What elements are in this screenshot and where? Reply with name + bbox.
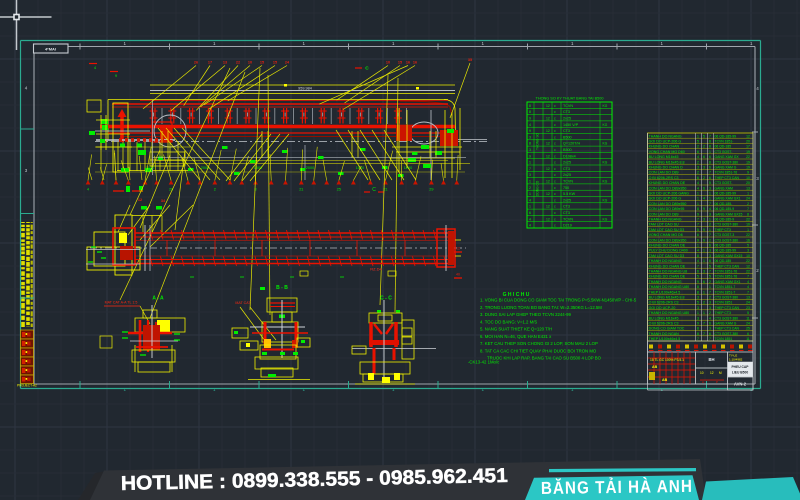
svg-text:4: 4: [697, 186, 699, 190]
svg-text:CT3: CT3: [563, 211, 570, 215]
svg-text:2: 2: [747, 202, 749, 206]
svg-text:22: 22: [746, 259, 750, 263]
svg-text:18 TL GC 100% P3.5.1: 18 TL GC 100% P3.5.1: [650, 358, 684, 362]
svg-text:c: c: [554, 154, 556, 158]
svg-text:6: 6: [709, 321, 711, 325]
svg-text:CT3 GOST-380: CT3 GOST-380: [715, 332, 739, 336]
svg-text:12: 12: [546, 217, 550, 221]
svg-text:8: 8: [697, 285, 699, 289]
svg-text:3: 3: [529, 173, 531, 177]
svg-text:1450 V/P: 1450 V/P: [563, 123, 579, 127]
svg-text:9: 9: [529, 129, 531, 133]
svg-text:KG: KG: [603, 217, 608, 221]
svg-text:1: 1: [697, 311, 699, 315]
svg-text:1: 1: [697, 191, 699, 195]
svg-text:16: 16: [406, 61, 410, 65]
svg-text:24: 24: [746, 301, 750, 305]
svg-text:Q=120T/H: Q=120T/H: [563, 142, 580, 146]
svg-text:B - B: B - B: [276, 285, 288, 291]
svg-text:8: 8: [709, 139, 711, 143]
svg-text:D219: D219: [563, 224, 572, 228]
svg-text:3: 3: [703, 165, 705, 169]
svg-text:16: 16: [413, 61, 417, 65]
svg-text:1: 1: [529, 161, 531, 165]
svg-text:06 QD-185: 06 QD-185: [715, 259, 732, 263]
svg-text:2: 2: [709, 311, 711, 315]
svg-text:2: 2: [709, 280, 711, 284]
svg-text:C: C: [365, 66, 369, 72]
svg-text:1: 1: [697, 202, 699, 206]
svg-text:6: 6: [709, 176, 711, 180]
svg-text:06 QD-185: 06 QD-185: [715, 145, 732, 149]
svg-text:GANG XAM: GANG XAM: [715, 186, 733, 190]
svg-text:8: 8: [529, 142, 531, 146]
svg-text:7: 7: [709, 202, 711, 206]
svg-text:CON LAN DO D89: CON LAN DO D89: [649, 171, 679, 175]
svg-text:20: 20: [746, 139, 750, 143]
svg-text:7: 7: [709, 269, 711, 273]
svg-text:3: 3: [703, 217, 705, 221]
svg-text:AB: AB: [662, 378, 668, 382]
svg-text:7: 7: [703, 321, 705, 325]
svg-text:4: 4: [529, 198, 531, 202]
svg-text:3: 3: [697, 295, 699, 299]
svg-text:1: 1: [709, 150, 711, 154]
svg-text:4: 4: [709, 207, 711, 211]
svg-text:8: 8: [747, 212, 749, 216]
svg-text:22: 22: [746, 155, 750, 159]
svg-text:7: 7: [709, 233, 711, 237]
svg-text:8: 8: [697, 207, 699, 211]
svg-text:16: 16: [746, 238, 750, 242]
svg-text:15: 15: [273, 61, 277, 65]
svg-text:c: c: [554, 192, 556, 196]
svg-text:10: 10: [746, 223, 750, 227]
svg-text:12: 12: [546, 104, 550, 108]
svg-text:c: c: [554, 117, 556, 121]
svg-text:CT3 GOST-380: CT3 GOST-380: [715, 295, 739, 299]
svg-text:3: 3: [709, 186, 711, 190]
svg-text:9: 9: [703, 207, 705, 211]
svg-text:THANH DO NGAN: THANH DO NGAN: [649, 332, 680, 336]
svg-text:1: 1: [529, 192, 531, 196]
svg-text:1: 1: [709, 285, 711, 289]
svg-text:c: c: [554, 161, 556, 165]
svg-text:M: M: [719, 371, 722, 375]
svg-text:959.984: 959.984: [298, 87, 312, 91]
svg-text:5: 5: [709, 181, 711, 185]
svg-text:13: 13: [746, 186, 750, 190]
svg-text:17: 17: [208, 61, 212, 65]
svg-text:21: 21: [299, 188, 303, 192]
svg-text:KHUNG DO CHAN DE: KHUNG DO CHAN DE: [649, 264, 686, 268]
svg-text:5: 5: [697, 275, 699, 279]
svg-text:c: c: [554, 148, 556, 152]
svg-text:VONG CHAN MO D60: VONG CHAN MO D60: [649, 150, 685, 154]
svg-text:8: 8: [709, 145, 711, 149]
svg-text:6: 6: [529, 211, 531, 215]
svg-text:CT3 GOST-: CT3 GOST-: [715, 181, 733, 185]
svg-text:KHUNG DO CHAN D: KHUNG DO CHAN D: [649, 165, 684, 169]
svg-text:2: 2: [703, 145, 705, 149]
svg-text:BU LONG M16x45 8.8: BU LONG M16x45 8.8: [649, 160, 685, 164]
svg-text:AB: AB: [652, 365, 658, 369]
svg-text:2: 2: [709, 238, 711, 242]
svg-text:AVN-2: AVN-2: [734, 382, 747, 387]
svg-text:3: 3: [709, 212, 711, 216]
svg-text:12: 12: [456, 247, 460, 251]
svg-text:c: c: [554, 123, 556, 127]
svg-text:12: 12: [546, 142, 550, 146]
svg-text:7: 7: [529, 167, 531, 171]
svg-text:4: 4: [697, 249, 699, 253]
svg-text:6: 6: [709, 155, 711, 159]
svg-text:GANG XAM GX15: GANG XAM GX15: [715, 254, 743, 258]
svg-text:4: 4: [697, 155, 699, 159]
svg-text:GANG XAM GX: GANG XAM GX: [715, 155, 740, 159]
svg-text:B500: B500: [563, 135, 572, 139]
svg-text:CT3 GOST-: CT3 GOST-: [715, 150, 733, 154]
svg-text:10: 10: [248, 61, 252, 65]
svg-text:THANH DO NGANG U8: THANH DO NGANG U8: [649, 269, 688, 273]
svg-text:1: 1: [709, 228, 711, 232]
svg-text:2: 2: [697, 145, 699, 149]
svg-text:7: 7: [697, 264, 699, 268]
svg-text:2x25: 2x25: [563, 173, 571, 177]
svg-text:3: 3: [697, 165, 699, 169]
svg-text:7: 7: [697, 217, 699, 221]
svg-text:GANG XAM GX1: GANG XAM GX1: [715, 197, 741, 201]
svg-text:LIEU B500: LIEU B500: [732, 371, 748, 375]
svg-text:6: 6: [703, 280, 705, 284]
svg-text:1: 1: [747, 228, 749, 232]
svg-text:7: 7: [709, 171, 711, 175]
svg-text:THEP CT3 CAN: THEP CT3 CAN: [715, 327, 740, 331]
svg-text:KHUNG DO CHAN DE: KHUNG DO CHAN DE: [649, 181, 686, 185]
svg-text:24: 24: [746, 321, 750, 325]
svg-text:THANH DO NGANG: THANH DO NGANG: [649, 259, 682, 263]
svg-text:1: 1: [529, 205, 531, 209]
svg-text:2: 2: [697, 171, 699, 175]
svg-text:GOI DO UCP-20: GOI DO UCP-20: [649, 306, 676, 310]
svg-text:2: 2: [709, 223, 711, 227]
svg-text:CON LAN DO D89x950: CON LAN DO D89x950: [649, 238, 687, 242]
svg-text:KHUNG DO CHAN DE: KHUNG DO CHAN DE: [649, 243, 686, 247]
svg-text:12: 12: [710, 371, 714, 375]
svg-text:4: 4: [697, 259, 699, 263]
svg-text:6: 6: [709, 332, 711, 336]
svg-text:06 QD-185-9: 06 QD-185-9: [715, 207, 735, 211]
svg-text:8: 8: [709, 259, 711, 263]
svg-text:9: 9: [697, 321, 699, 325]
svg-text:BU LONG M16x45: BU LONG M16x45: [649, 155, 679, 159]
svg-text:7: 7: [697, 223, 699, 227]
svg-text:06 QD-185: 06 QD-185: [715, 243, 732, 247]
svg-text:8: 8: [709, 160, 711, 164]
svg-text:26: 26: [194, 61, 198, 65]
svg-text:THONG SO: THONG SO: [536, 132, 540, 150]
svg-text:THANH DO NGANG U80: THANH DO NGANG U80: [649, 285, 690, 289]
svg-text:12: 12: [546, 180, 550, 184]
svg-text:06 QD-185-9: 06 QD-185-9: [715, 217, 735, 221]
svg-text:A - A: A - A: [152, 296, 164, 302]
svg-text:6. MOI HAN N=46, QUE HAN E431: 6. MOI HAN N=46, QUE HAN E431 x: [480, 334, 552, 339]
svg-text:12: 12: [546, 167, 550, 171]
svg-text:4: 4: [529, 217, 531, 221]
svg-text:CT3: CT3: [563, 167, 570, 171]
svg-text:2. TRONG LUONG TOAN BO BANG T: 2. TRONG LUONG TOAN BO BANG TAI: W=2.350…: [480, 305, 602, 310]
svg-text:1: 1: [703, 259, 705, 263]
svg-text:6: 6: [709, 243, 711, 247]
svg-text:8. TAT CA CAC CHI TIET QUAY P: 8. TAT CA CAC CHI TIET QUAY PHAI DUOC BO…: [480, 348, 597, 353]
svg-text:c: c: [554, 104, 556, 108]
svg-text:4. TOC DO BANG: V=1.2 M/S: 4. TOC DO BANG: V=1.2 M/S: [480, 319, 537, 324]
svg-text:1: 1: [709, 217, 711, 221]
svg-text:9: 9: [697, 212, 699, 216]
svg-text:KG: KG: [603, 161, 608, 165]
svg-text:CT3 GOST-380: CT3 GOST-380: [715, 238, 739, 242]
svg-text:THEP U100x46x4.5: THEP U100x46x4.5: [649, 337, 681, 341]
svg-text:O BI 6206-2RS C3: O BI 6206-2RS C3: [649, 301, 679, 305]
svg-text:TCVN: TCVN: [563, 104, 573, 108]
svg-text:2: 2: [529, 186, 531, 190]
svg-text:THONG SO KY THUAT BANG TAI B50: THONG SO KY THUAT BANG TAI B500: [536, 97, 604, 101]
svg-text:4: 4: [697, 181, 699, 185]
svg-text:c: c: [554, 173, 556, 177]
svg-text:06 QD-185-99: 06 QD-185-99: [715, 249, 737, 253]
svg-text:D108x4: D108x4: [563, 154, 576, 158]
svg-text:6: 6: [697, 176, 699, 180]
svg-text:1: 1: [529, 180, 531, 184]
svg-text:CON LAN DO D89x950: CON LAN DO D89x950: [649, 186, 687, 190]
svg-text:4: 4: [747, 285, 749, 289]
svg-text:12: 12: [746, 134, 750, 138]
svg-text:MAT CAT: MAT CAT: [235, 301, 251, 305]
svg-text:3: 3: [703, 269, 705, 273]
svg-text:6: 6: [703, 186, 705, 190]
svg-text:4: 4: [529, 123, 531, 127]
svg-text:6: 6: [703, 155, 705, 159]
svg-text:8: 8: [697, 327, 699, 331]
svg-text:THANH DO NGANG: THANH DO NGANG: [649, 217, 682, 221]
svg-text:9: 9: [697, 280, 699, 284]
svg-text:TCVN 1851-7: TCVN 1851-7: [715, 285, 736, 289]
svg-text:TCVN 1851-76: TCVN 1851-76: [715, 171, 738, 175]
svg-text:GOI DO UCP-206 G: GOI DO UCP-206 G: [649, 139, 682, 143]
svg-text:3: 3: [529, 135, 531, 139]
svg-text:C: C: [372, 187, 376, 193]
svg-text:THEP CT3 CAN: THEP CT3 CAN: [715, 306, 740, 310]
svg-text:THANH DO NGANG: THANH DO NGANG: [649, 280, 682, 284]
svg-text:6: 6: [697, 233, 699, 237]
svg-text:13: 13: [746, 295, 750, 299]
svg-text:12: 12: [746, 264, 750, 268]
svg-text:06 QD-185-99: 06 QD-185-99: [715, 191, 737, 195]
svg-text:24: 24: [746, 197, 750, 201]
svg-text:29: 29: [429, 188, 433, 192]
svg-text:KHUNG DO CHAN: KHUNG DO CHAN: [649, 145, 680, 149]
svg-text:22: 22: [236, 61, 240, 65]
svg-text:CON LAN DO D89x950: CON LAN DO D89x950: [649, 202, 687, 206]
svg-text:5: 5: [747, 243, 749, 247]
svg-text:22: 22: [746, 233, 750, 237]
svg-text:12: 12: [546, 192, 550, 196]
svg-text:4: 4: [529, 224, 531, 228]
svg-text:c: c: [554, 205, 556, 209]
svg-text:-CK13-42 1Mo/c: -CK13-42 1Mo/c: [468, 360, 500, 365]
svg-text:c: c: [554, 110, 556, 114]
svg-text:CON LAN DO D89x95: CON LAN DO D89x95: [649, 207, 685, 211]
svg-text:c: c: [554, 180, 556, 184]
svg-text:3. DUNG SAI LAP GHEP THEO TCV: 3. DUNG SAI LAP GHEP THEO TCVN 2244-99: [480, 312, 572, 317]
svg-text:c: c: [554, 217, 556, 221]
svg-text:12: 12: [546, 129, 550, 133]
svg-text:THANH DO NGANG U80: THANH DO NGANG U80: [649, 311, 690, 315]
svg-text:2x25: 2x25: [563, 117, 571, 121]
svg-text:06 QD-185-99: 06 QD-185-99: [715, 134, 737, 138]
svg-text:3: 3: [709, 254, 711, 258]
svg-text:GANG XAM GX15: GANG XAM GX15: [715, 212, 743, 216]
svg-text:19: 19: [746, 160, 750, 164]
svg-text:1: 1: [703, 290, 705, 294]
svg-text:4: 4: [703, 197, 705, 201]
svg-text:GANG XAM G: GANG XAM G: [715, 165, 737, 169]
svg-text:4*MAI: 4*MAI: [45, 47, 56, 52]
svg-text:VONG CHAN MO D6: VONG CHAN MO D6: [649, 233, 683, 237]
svg-text:3: 3: [709, 306, 711, 310]
svg-text:9: 9: [703, 228, 705, 232]
svg-text:7: 7: [747, 275, 749, 279]
svg-text:12: 12: [138, 198, 142, 202]
svg-text:6: 6: [747, 332, 749, 336]
svg-text:23: 23: [746, 306, 750, 310]
svg-text:5.5 KW: 5.5 KW: [563, 192, 576, 196]
svg-text:1: 1: [703, 311, 705, 315]
svg-text:4: 4: [709, 316, 711, 320]
svg-text:5: 5: [747, 311, 749, 315]
svg-text:10: 10: [746, 254, 750, 258]
svg-text:TCVN: TCVN: [563, 217, 573, 221]
svg-text:6: 6: [709, 165, 711, 169]
svg-text:THEP CT3: THEP CT3: [715, 228, 731, 232]
svg-text:TRUOC KHI LAP RAP, BANG TAI CA: TRUOC KHI LAP RAP, BANG TAI CAO SU B500 …: [487, 356, 602, 361]
svg-text:CON LAN DO D89: CON LAN DO D89: [649, 212, 679, 216]
svg-text:TAM LOT CAO SU D3: TAM LOT CAO SU D3: [649, 228, 685, 232]
svg-text:1: 1: [709, 191, 711, 195]
svg-text:DONG CO: DONG CO: [536, 180, 540, 196]
svg-text:5: 5: [697, 228, 699, 232]
svg-text:TCVN 1851-: TCVN 1851-: [715, 139, 734, 143]
svg-text:c: c: [554, 224, 556, 228]
svg-text:BU LONG M16x45 8.8: BU LONG M16x45 8.8: [649, 295, 685, 299]
svg-text:15: 15: [398, 61, 402, 65]
svg-text:5. NANG SUAT THIET KE Q=120 T: 5. NANG SUAT THIET KE Q=120 T/H: [480, 327, 552, 332]
svg-text:O BI 6206-2RS C3: O BI 6206-2RS C3: [649, 321, 679, 325]
svg-text:2: 2: [703, 176, 705, 180]
svg-text:KG: KG: [603, 198, 608, 202]
svg-text:06 QD-185-: 06 QD-185-: [715, 202, 733, 206]
svg-text:TCVN 1851-76: TCVN 1851-76: [715, 275, 738, 279]
svg-text:2: 2: [214, 188, 216, 192]
svg-text:10: 10: [386, 61, 390, 65]
svg-text:3: 3: [709, 249, 711, 253]
svg-text:TCVN 1851: TCVN 1851: [715, 337, 733, 341]
svg-text:c: c: [554, 142, 556, 146]
svg-text:GOI DO UCP-206 G: GOI DO UCP-206 G: [649, 197, 682, 201]
svg-text:3: 3: [697, 316, 699, 320]
svg-text:c: c: [554, 186, 556, 190]
svg-text:7: 7: [697, 337, 699, 341]
svg-text:5: 5: [709, 264, 711, 268]
svg-text:11: 11: [746, 337, 750, 341]
svg-text:7: 7: [709, 290, 711, 294]
svg-text:20: 20: [746, 181, 750, 185]
svg-text:6: 6: [697, 150, 699, 154]
svg-text:TCVN: TCVN: [563, 180, 573, 184]
svg-text:12: 12: [546, 154, 550, 158]
svg-text:11: 11: [746, 316, 750, 320]
svg-text:KG: KG: [603, 180, 608, 184]
svg-text:2x25: 2x25: [563, 198, 571, 202]
svg-text:8: 8: [697, 332, 699, 336]
svg-text:7: 7: [709, 337, 711, 341]
svg-text:3: 3: [709, 301, 711, 305]
svg-text:17: 17: [746, 145, 750, 149]
svg-text:MAT CAT A-A TL 1:5: MAT CAT A-A TL 1:5: [105, 301, 138, 305]
svg-text:9: 9: [529, 154, 531, 158]
svg-text:KG: KG: [603, 123, 608, 127]
svg-text:2000: 2000: [306, 166, 314, 170]
svg-text:9: 9: [529, 117, 531, 121]
svg-text:CT3 GOST-380: CT3 GOST-380: [715, 160, 739, 164]
svg-text:7: 7: [747, 290, 749, 294]
svg-text:5: 5: [697, 139, 699, 143]
svg-text:7: 7: [709, 134, 711, 138]
svg-text:GANG XAM G: GANG XAM G: [715, 321, 737, 325]
svg-text:GOI DO UCP-206 GANG: GOI DO UCP-206 GANG: [649, 191, 690, 195]
svg-text:BU LONG M16x45: BU LONG M16x45: [649, 316, 679, 320]
svg-text:KHUNG DO CHAN DE: KHUNG DO CHAN DE: [649, 275, 686, 279]
svg-text:750: 750: [563, 186, 569, 190]
svg-text:CT3: CT3: [563, 110, 570, 114]
svg-text:15: 15: [260, 61, 264, 65]
svg-text:13: 13: [223, 61, 227, 65]
svg-text:1: 1: [709, 197, 711, 201]
svg-text:A: A: [702, 380, 704, 384]
svg-text:RZ.D4: RZ.D4: [370, 267, 382, 272]
svg-text:DONG CO GIAM TOC: DONG CO GIAM TOC: [649, 327, 685, 331]
svg-text:THEP CT3 CAN: THEP CT3 CAN: [715, 264, 740, 268]
svg-text:10: 10: [746, 176, 750, 180]
svg-text:C - C: C - C: [380, 296, 392, 302]
svg-text:1: 1: [747, 191, 749, 195]
svg-text:3: 3: [529, 148, 531, 152]
svg-text:CT3 GOST-380: CT3 GOST-380: [715, 223, 739, 227]
svg-text:8: 8: [697, 290, 699, 294]
svg-text:5: 5: [709, 275, 711, 279]
svg-text:4: 4: [87, 188, 89, 192]
svg-text:THEP CT3: THEP CT3: [715, 311, 731, 315]
svg-text:1: 1: [697, 197, 699, 201]
svg-text:THEP U100x46x4.5: THEP U100x46x4.5: [649, 290, 681, 294]
svg-text:KG: KG: [603, 142, 608, 146]
svg-text:O BI 6206-2RS C3: O BI 6206-2RS C3: [649, 176, 679, 180]
svg-text:1. VONG BI CUA DONG CO GIAM T: 1. VONG BI CUA DONG CO GIAM TOC TAI TRON…: [480, 298, 637, 303]
svg-text:3: 3: [747, 249, 749, 253]
svg-text:PHEU CAP: PHEU CAP: [731, 365, 749, 369]
svg-text:5: 5: [703, 134, 705, 138]
svg-text:P: P: [716, 380, 718, 384]
